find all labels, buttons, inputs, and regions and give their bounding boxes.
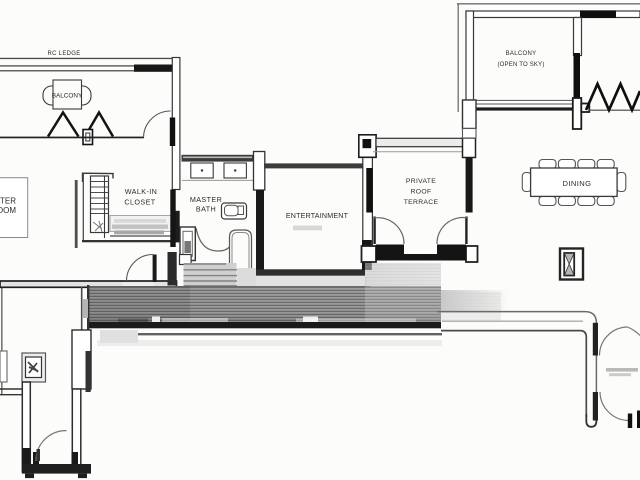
svg-text:CLOSET: CLOSET (124, 198, 155, 207)
svg-text:BEDROOM: BEDROOM (0, 206, 16, 215)
svg-text:RC LEDGE: RC LEDGE (47, 51, 80, 57)
svg-text:WALK-IN: WALK-IN (125, 187, 157, 196)
svg-text:BALCONY: BALCONY (52, 93, 83, 100)
svg-text:TERRACE: TERRACE (404, 199, 439, 206)
svg-text:ENTERTAINMENT: ENTERTAINMENT (286, 212, 349, 220)
svg-text:MASTER: MASTER (190, 195, 222, 204)
svg-text:DINING: DINING (563, 179, 592, 188)
svg-text:(OPEN TO SKY): (OPEN TO SKY) (497, 62, 544, 68)
svg-text:MASTER: MASTER (0, 197, 16, 206)
svg-text:PRIVATE: PRIVATE (406, 178, 436, 185)
svg-text:ROOF: ROOF (411, 189, 432, 196)
svg-text:BALCONY: BALCONY (506, 51, 537, 57)
svg-text:BATH: BATH (196, 205, 216, 214)
